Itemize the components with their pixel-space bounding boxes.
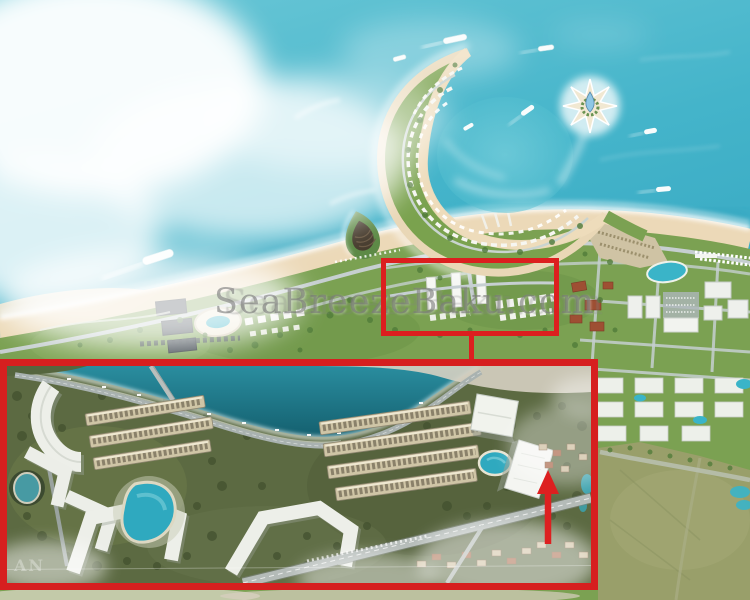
aerial-render: SeaBreezeBaku.com — [0, 0, 750, 600]
highlight-rectangle — [381, 258, 559, 336]
highlight-connector-line — [469, 334, 474, 360]
lagoon-pool-center — [113, 476, 185, 548]
inset-watermark-fragment: AN — [14, 556, 45, 575]
inset-zoom-panel: AN — [0, 359, 598, 590]
inset-scene — [7, 366, 591, 583]
